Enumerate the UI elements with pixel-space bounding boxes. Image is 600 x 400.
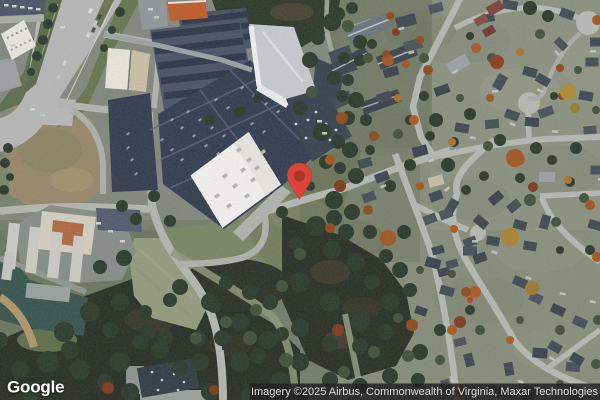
svg-text:Imagery ©2025 Airbus, Commonwe: Imagery ©2025 Airbus, Commonwealth of Vi…	[251, 386, 599, 398]
svg-text:Google: Google	[7, 378, 64, 397]
